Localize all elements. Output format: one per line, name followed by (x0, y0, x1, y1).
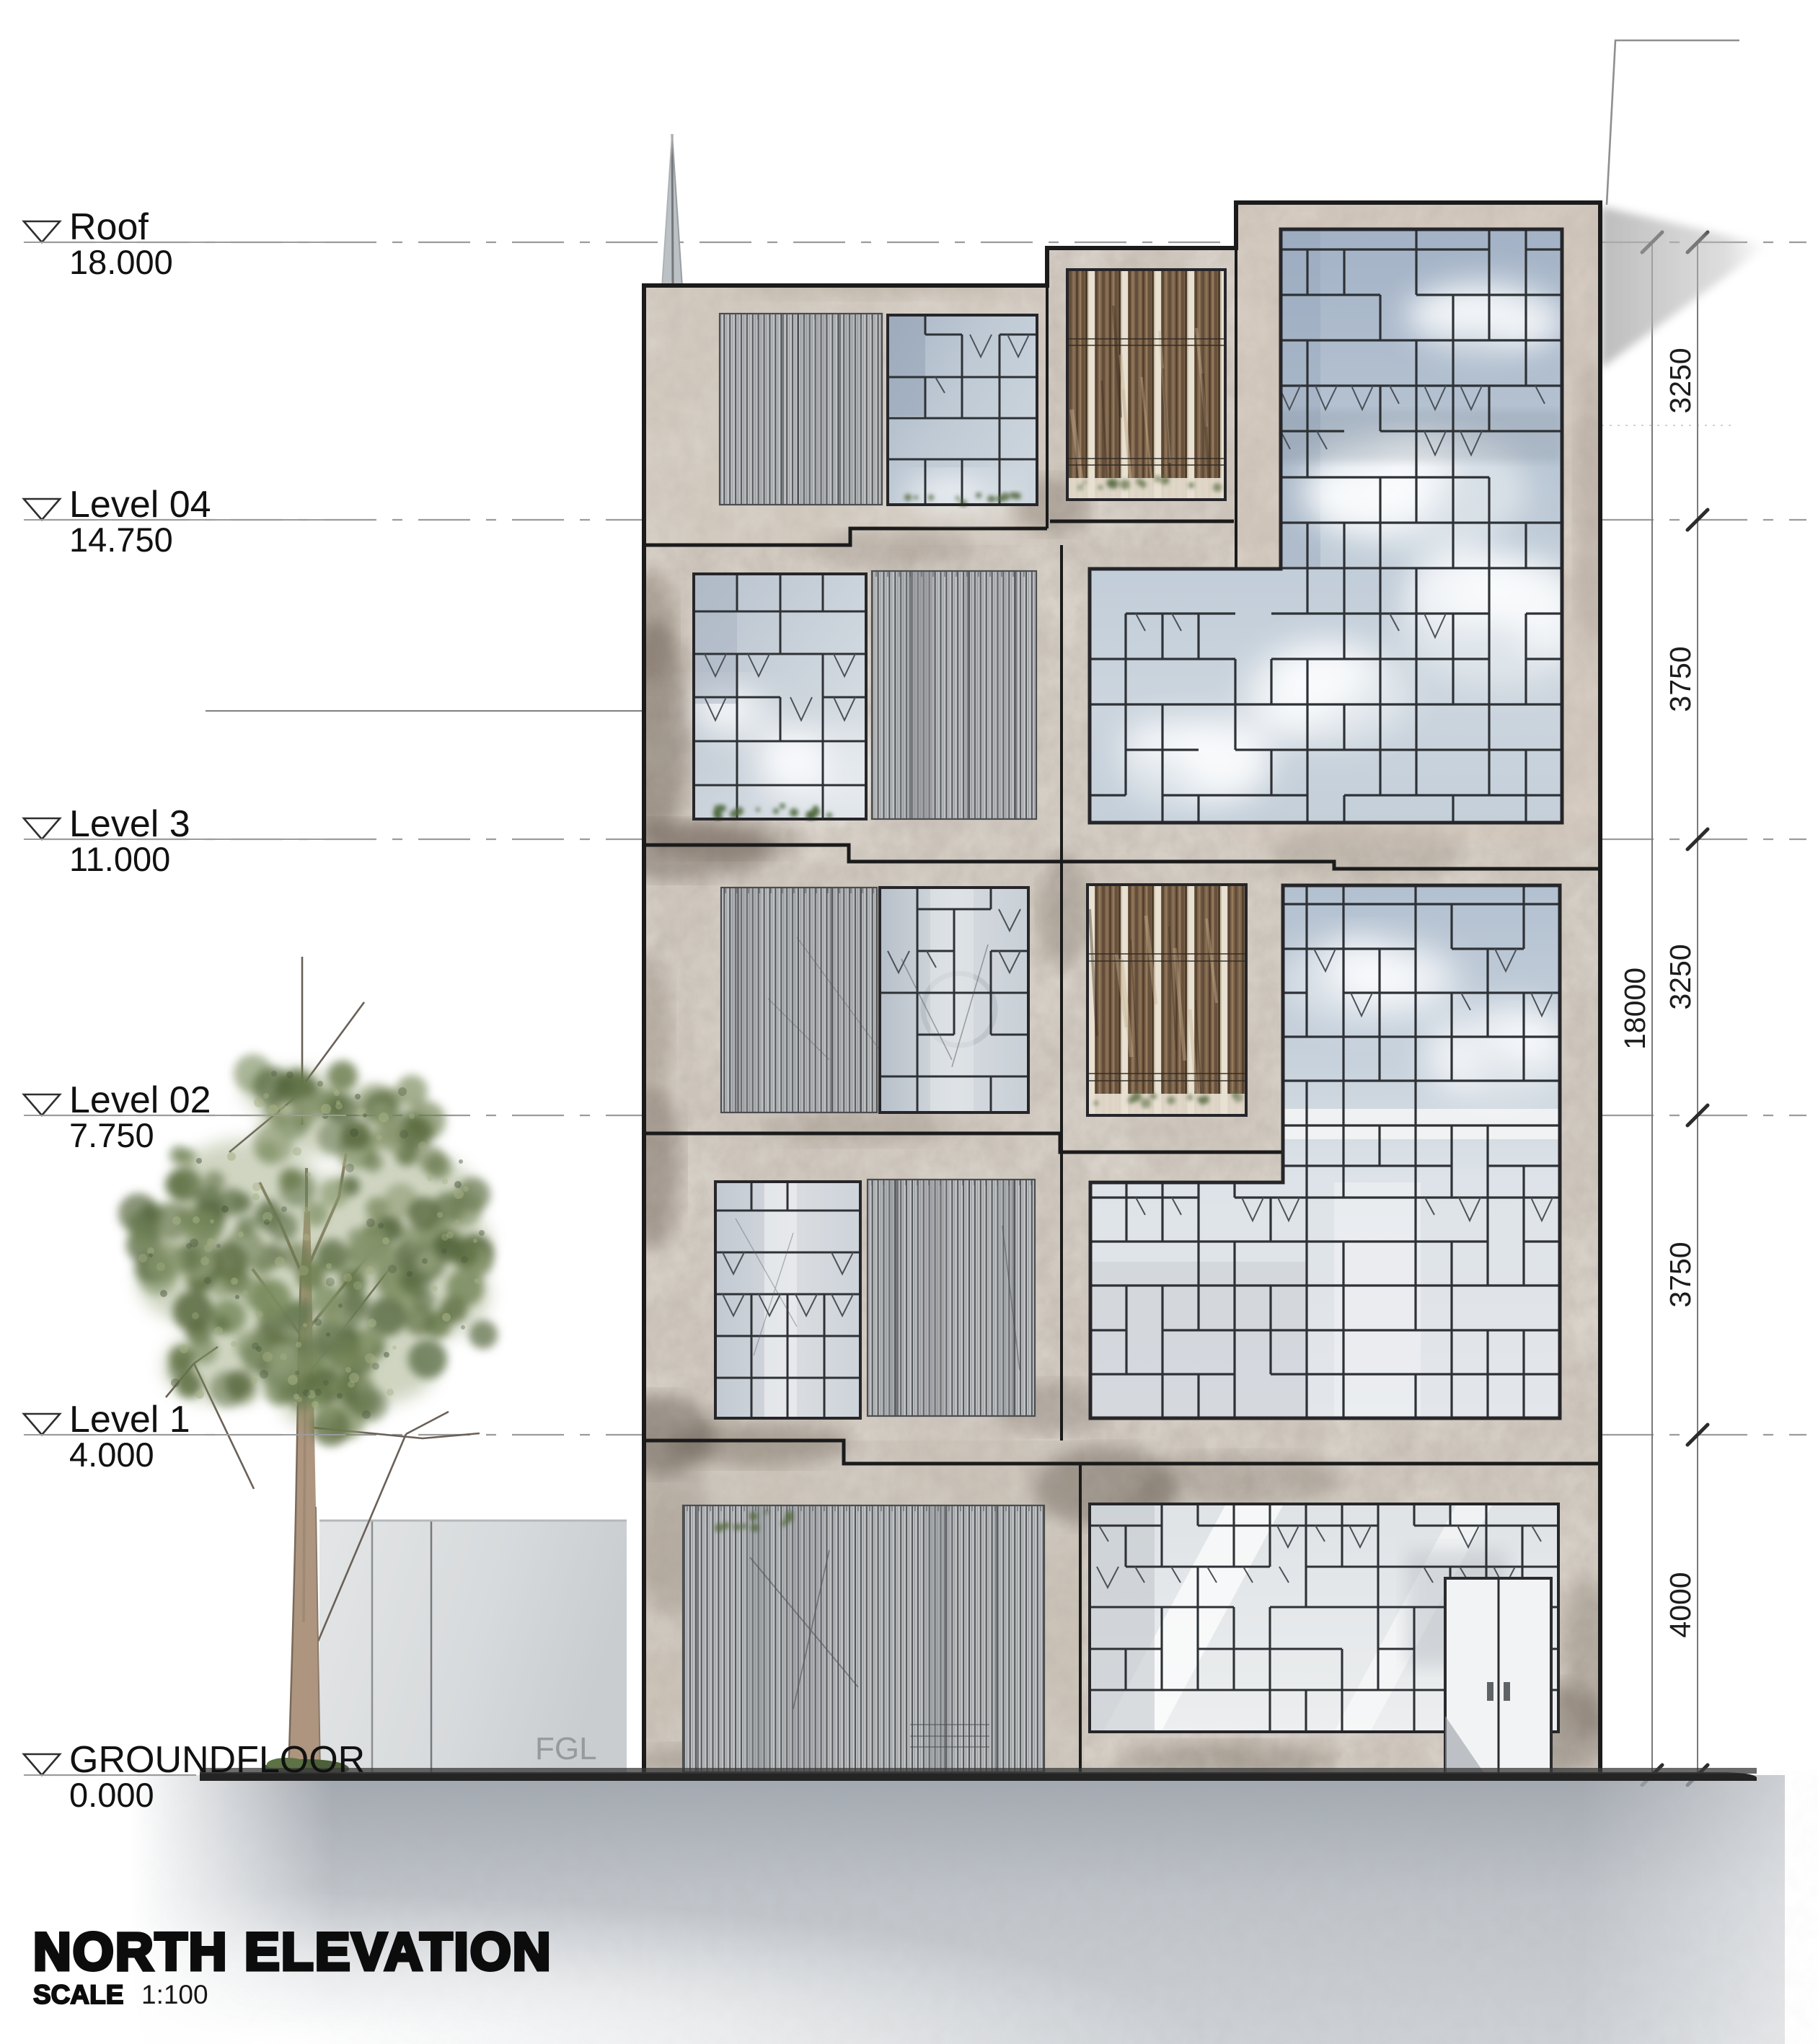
svg-text:4.000: 4.000 (69, 1435, 154, 1474)
svg-text:0.000: 0.000 (69, 1776, 154, 1814)
svg-text:18.000: 18.000 (69, 243, 173, 281)
svg-text:Level 02: Level 02 (69, 1079, 211, 1121)
svg-text:4000: 4000 (1664, 1572, 1697, 1637)
svg-text:3250: 3250 (1664, 944, 1697, 1009)
svg-text:1:100: 1:100 (141, 1980, 208, 2009)
svg-text:3250: 3250 (1664, 348, 1697, 413)
svg-text:Level 04: Level 04 (69, 484, 211, 526)
svg-text:Level 3: Level 3 (69, 803, 190, 845)
svg-text:3750: 3750 (1664, 1242, 1697, 1307)
svg-text:FGL: FGL (535, 1731, 597, 1766)
svg-text:NORTH ELEVATION: NORTH ELEVATION (33, 1923, 552, 1981)
svg-text:14.750: 14.750 (69, 521, 173, 559)
svg-text:Level 1: Level 1 (69, 1399, 190, 1441)
svg-text:SCALE: SCALE (33, 1980, 123, 2009)
svg-text:7.750: 7.750 (69, 1116, 154, 1154)
svg-text:18000: 18000 (1618, 968, 1651, 1050)
svg-text:GROUNDFLOOR: GROUNDFLOOR (69, 1739, 365, 1781)
svg-text:11.000: 11.000 (69, 840, 170, 878)
svg-text:3750: 3750 (1664, 646, 1697, 712)
svg-text:Roof: Roof (69, 206, 149, 248)
